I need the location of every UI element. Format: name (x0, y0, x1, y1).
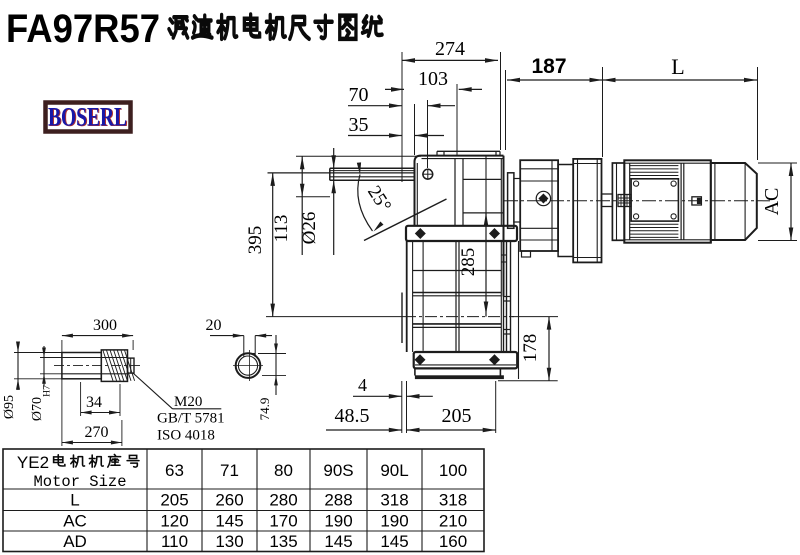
svg-text:20: 20 (206, 317, 222, 334)
svg-text:205: 205 (442, 405, 472, 427)
svg-text:FA97R57: FA97R57 (6, 7, 160, 51)
svg-text:GB/T 5781: GB/T 5781 (157, 411, 225, 427)
svg-text:288: 288 (324, 491, 352, 510)
svg-text:285: 285 (458, 248, 479, 277)
svg-text:100: 100 (439, 461, 467, 480)
svg-text:178: 178 (520, 334, 541, 363)
svg-text:205: 205 (160, 491, 188, 510)
svg-text:110: 110 (161, 532, 188, 551)
svg-text:Ø26: Ø26 (299, 212, 320, 245)
svg-text:300: 300 (93, 317, 117, 334)
svg-text:120: 120 (160, 512, 188, 531)
svg-text:130: 130 (215, 532, 243, 551)
svg-text:145: 145 (324, 532, 352, 551)
svg-text:Motor Size: Motor Size (33, 473, 126, 491)
svg-text:318: 318 (380, 491, 408, 510)
svg-text:35: 35 (349, 114, 369, 136)
svg-text:190: 190 (380, 512, 408, 531)
svg-text:170: 170 (269, 512, 297, 531)
svg-text:74.9: 74.9 (257, 398, 272, 421)
svg-text:260: 260 (215, 491, 243, 510)
svg-text:M20: M20 (174, 394, 202, 410)
svg-text:90L: 90L (380, 461, 408, 480)
svg-text:70: 70 (349, 84, 369, 106)
svg-text:210: 210 (439, 512, 467, 531)
svg-text:L: L (70, 491, 79, 510)
svg-text:318: 318 (439, 491, 467, 510)
svg-text:80: 80 (274, 461, 293, 480)
svg-text:135: 135 (269, 532, 297, 551)
svg-text:Ø70: Ø70 (30, 397, 45, 421)
svg-text:H7: H7 (43, 385, 53, 397)
svg-text:190: 190 (324, 512, 352, 531)
svg-text:160: 160 (439, 532, 467, 551)
svg-text:Ø95: Ø95 (2, 395, 17, 419)
svg-text:AD: AD (63, 532, 87, 551)
svg-text:90S: 90S (323, 461, 353, 480)
svg-text:34: 34 (86, 394, 102, 411)
svg-text:63: 63 (165, 461, 184, 480)
svg-text:AC: AC (63, 512, 87, 531)
svg-text:ISO 4018: ISO 4018 (157, 428, 215, 444)
svg-text:71: 71 (220, 461, 239, 480)
svg-text:145: 145 (380, 532, 408, 551)
svg-text:274: 274 (435, 38, 465, 60)
svg-text:L: L (671, 54, 684, 79)
svg-text:395: 395 (245, 226, 266, 255)
svg-text:187: 187 (531, 55, 566, 78)
svg-text:4: 4 (358, 375, 367, 395)
svg-text:BOSERL: BOSERL (48, 103, 127, 132)
svg-text:YE2: YE2 (17, 453, 49, 472)
svg-text:AC: AC (761, 188, 783, 216)
svg-text:145: 145 (215, 512, 243, 531)
svg-text:48.5: 48.5 (335, 405, 370, 427)
svg-text:103: 103 (418, 68, 448, 90)
svg-text:280: 280 (269, 491, 297, 510)
svg-text:113: 113 (271, 215, 292, 243)
svg-text:270: 270 (85, 424, 109, 441)
